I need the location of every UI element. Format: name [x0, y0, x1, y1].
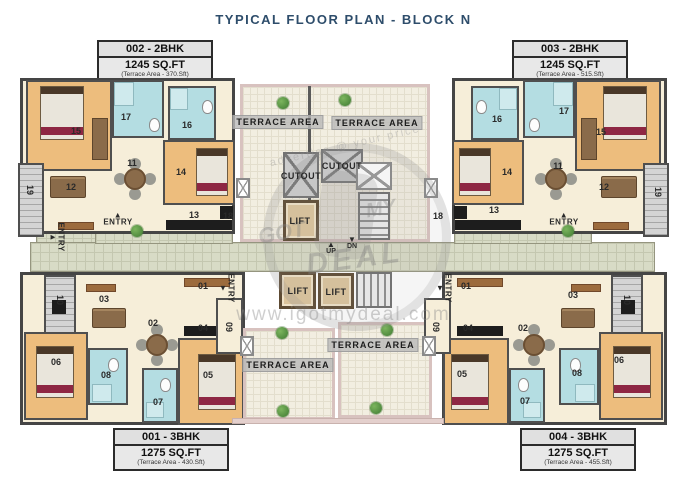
kitchen-counter-icon: [166, 220, 232, 230]
arrow-icon: ▼: [437, 273, 444, 302]
plant-icon: [277, 97, 289, 109]
staircase-up: [358, 192, 390, 240]
room-number-label: 19: [653, 187, 663, 197]
room-number-label: 13: [489, 205, 499, 215]
kitchen-counter-icon: [455, 220, 521, 230]
sofa-icon: [561, 308, 595, 328]
terrace-area-label: TERRACE AREA: [327, 338, 418, 352]
bed-icon: [36, 346, 74, 398]
room-number-label: 05: [457, 369, 467, 379]
room-number-label: 14: [176, 167, 186, 177]
room-number-label: 04: [463, 323, 473, 333]
arrow-icon: ▼: [220, 273, 227, 302]
room-number-label: 07: [153, 397, 163, 407]
entry-label: ENTRY▼: [220, 273, 235, 302]
staircase-down: [356, 272, 392, 308]
core-label: LIFT: [288, 286, 309, 296]
window-icon: [240, 336, 254, 356]
floor-plan: advertise @ your price GOT MY DEAL www.i…: [0, 0, 687, 480]
bed-icon: [198, 354, 236, 410]
bed-icon: [613, 346, 651, 398]
tv-unit-icon: [86, 284, 116, 292]
wardrobe-icon: [92, 118, 108, 160]
room-number-label: 10: [622, 295, 632, 305]
plant-icon: [562, 225, 574, 237]
room-number-label: 12: [599, 182, 609, 192]
plant-icon: [131, 225, 143, 237]
terrace-area-label: TERRACE AREA: [331, 116, 422, 130]
room-number-label: 07: [520, 396, 530, 406]
shower-icon: [553, 82, 573, 106]
room-number-label: 06: [51, 357, 61, 367]
fridge-icon: [454, 206, 467, 219]
dining-table-icon: [523, 334, 545, 356]
room-number-label: 10: [55, 295, 65, 305]
shower-icon: [575, 384, 595, 402]
corridor: [30, 242, 655, 272]
bed-icon: [459, 148, 491, 196]
room-number-label: 03: [568, 290, 578, 300]
shower-icon: [114, 82, 134, 106]
entry-label: ▲ENTRY: [549, 212, 578, 227]
room-number-label: 19: [25, 185, 35, 195]
toilet-icon: [160, 378, 171, 392]
room-number-label: 18: [433, 211, 443, 221]
floor-plan-page: TYPICAL FLOOR PLAN - BLOCK N 002 - 2BHK …: [0, 0, 687, 480]
room-number-label: 08: [101, 370, 111, 380]
dining-table-icon: [146, 334, 168, 356]
room-number-label: 15: [596, 127, 606, 137]
plant-icon: [276, 327, 288, 339]
plant-icon: [370, 402, 382, 414]
room-number-label: 01: [198, 281, 208, 291]
balcony-19: [18, 163, 44, 237]
room-number-label: 17: [559, 106, 569, 116]
room-number-label: 16: [182, 120, 192, 130]
room-number-label: 04: [198, 323, 208, 333]
plant-icon: [277, 405, 289, 417]
stair-direction-label: ▲UP: [326, 241, 336, 255]
room-number-label: 11: [553, 161, 563, 171]
room-number-label: 02: [148, 318, 158, 328]
tv-unit-icon: [593, 222, 629, 230]
dining-table-icon: [124, 168, 146, 190]
arrow-icon: ▼: [347, 236, 357, 243]
room-number-label: 06: [614, 355, 624, 365]
toilet-icon: [202, 100, 213, 114]
room-number-label: 12: [66, 182, 76, 192]
terrace-area-label: TERRACE AREA: [232, 115, 323, 129]
room-number-label: 11: [127, 158, 137, 168]
room-number-label: 15: [71, 126, 81, 136]
wardrobe-icon: [581, 118, 597, 160]
room-number-label: 14: [502, 167, 512, 177]
room-number-label: 09: [224, 322, 234, 332]
window-icon: [422, 336, 436, 356]
toilet-icon: [529, 118, 540, 132]
core-label: CUTOUT: [281, 171, 321, 181]
room-number-label: 16: [492, 114, 502, 124]
shower-icon: [170, 88, 188, 110]
sofa-icon: [92, 308, 126, 328]
toilet-icon: [476, 100, 487, 114]
room-number-label: 13: [189, 210, 199, 220]
terrace-bottom-left: [243, 328, 335, 420]
arrow-icon: ▲: [326, 241, 336, 248]
entry-label: ▲ENTRY: [103, 212, 132, 227]
bed-icon: [603, 86, 647, 140]
toilet-icon: [149, 118, 160, 132]
room-number-label: 17: [121, 112, 131, 122]
room-number-label: 03: [99, 294, 109, 304]
window-icon: [236, 178, 250, 198]
room-number-label: 18: [223, 211, 233, 221]
room-number-label: 05: [203, 370, 213, 380]
terrace-area-label: TERRACE AREA: [242, 358, 333, 372]
bed-icon: [196, 148, 228, 196]
terrace-bottom-right: [338, 322, 432, 418]
arrow-icon: ►: [50, 222, 57, 251]
window-icon: [424, 178, 438, 198]
toilet-icon: [518, 378, 529, 392]
core-label: LIFT: [326, 287, 347, 297]
shower-icon: [92, 384, 112, 402]
room-number-label: 01: [461, 281, 471, 291]
plant-icon: [381, 324, 393, 336]
room-number-label: 08: [572, 368, 582, 378]
stair-direction-label: ▼DN: [347, 236, 357, 250]
room-number-label: 02: [518, 323, 528, 333]
boundary-wall: [232, 418, 444, 424]
entry-label: ENTRY▼: [437, 273, 452, 302]
balcony-19: [643, 163, 669, 237]
room-number-label: 09: [431, 322, 441, 332]
entry-label: ENTRY►: [50, 222, 65, 251]
shower-icon: [499, 88, 517, 110]
bed-icon: [451, 354, 489, 410]
plant-icon: [339, 94, 351, 106]
dining-table-icon: [545, 168, 567, 190]
core-label: CUTOUT: [322, 161, 362, 171]
core-label: LIFT: [290, 216, 311, 226]
